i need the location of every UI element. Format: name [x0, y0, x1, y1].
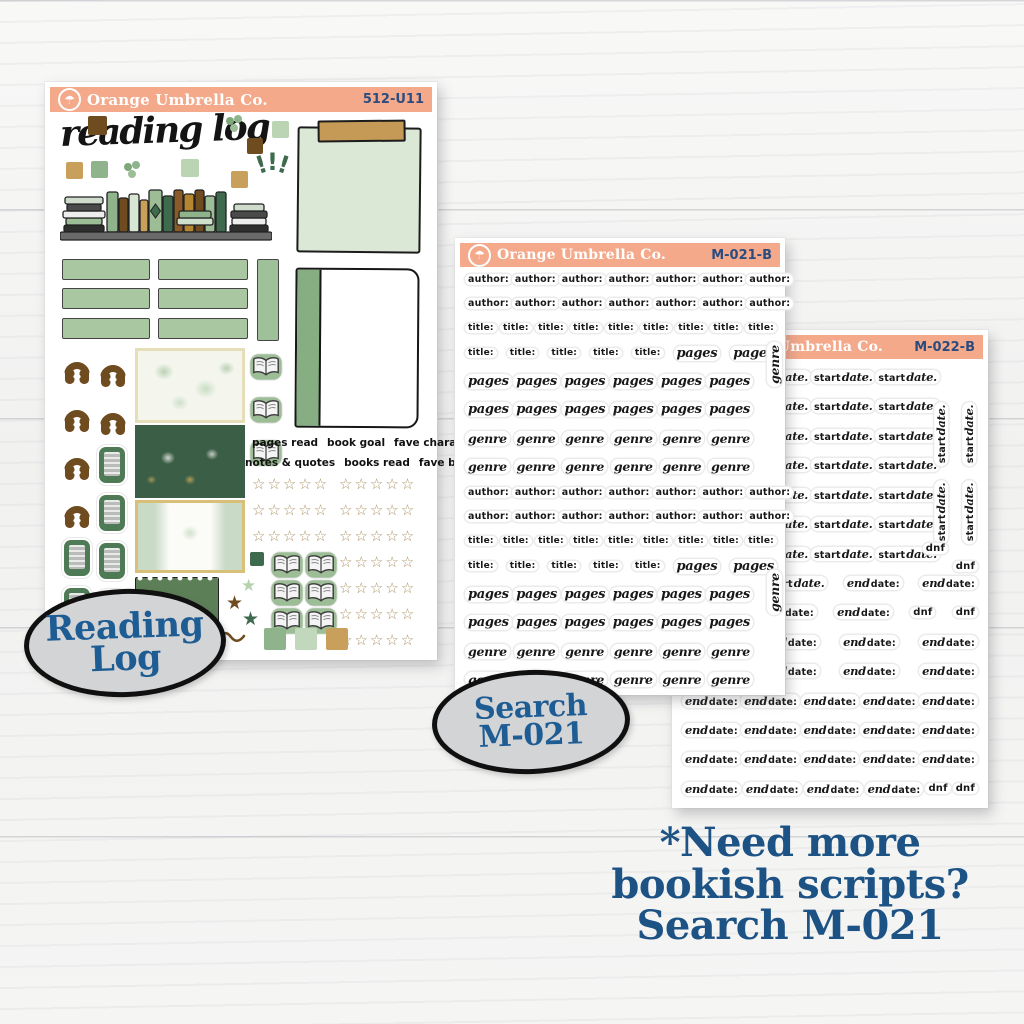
sticker-row: title:title:title:title:title:title:titl… [465, 323, 777, 333]
enddate-sticker: enddate: [860, 752, 919, 766]
genre-sticker: genre [514, 644, 559, 659]
e-reader-icon [99, 447, 125, 483]
startdate-sticker: startdate. [811, 547, 875, 561]
genre-sticker: genre [660, 459, 705, 474]
label-sticker-row: notes & quotesbooks readfave book [245, 457, 477, 469]
sticker-row: author:author:author:author:author:autho… [465, 274, 777, 285]
title-sticker: title: [632, 561, 664, 571]
dnf-sticker: dnf [953, 783, 978, 794]
washi-strip-sticker [62, 259, 150, 280]
square-sticker [264, 628, 286, 650]
star-rating-row: ☆☆☆☆☆ [339, 632, 416, 649]
author-sticker: author: [465, 487, 512, 498]
e-reader-icon [64, 540, 90, 576]
title-sticker: title: [640, 323, 672, 333]
genre-sticker: genre [514, 459, 559, 474]
author-sticker: author: [746, 511, 793, 522]
sticker-row: enddate:enddate:enddate:enddate:dnfdnf [682, 782, 978, 796]
enddate-sticker: enddate: [741, 723, 800, 737]
title-sticker: title: [465, 536, 497, 546]
sticker-row: pagespagespagespagespagespages [465, 587, 753, 602]
title-sticker: title: [710, 536, 742, 546]
title-sticker: title: [548, 348, 580, 358]
open-book-icon [304, 551, 338, 579]
title-sticker: title: [710, 323, 742, 333]
author-sticker: author: [653, 274, 700, 285]
star-sticker: ★ [242, 610, 259, 629]
author-sticker: author: [559, 274, 606, 285]
pages-sticker: pages [513, 587, 560, 602]
sticker-row: enddate:enddate:enddate:enddate:enddate: [682, 752, 978, 766]
enddate-sticker: enddate: [860, 723, 919, 737]
vertical-startdate-sticker: startdate. [930, 390, 952, 478]
enddate-sticker: enddate: [840, 664, 899, 678]
enddate-sticker: enddate: [919, 635, 978, 649]
sticker-row: genregenregenregenregenregenre [465, 431, 753, 446]
title-sticker: title: [640, 536, 672, 546]
pages-sticker: pages [706, 402, 753, 417]
pages-sticker: pages [658, 374, 705, 389]
title-sticker: title: [465, 348, 497, 358]
headphones-icon [62, 444, 92, 484]
sticker-row: genregenregenregenregenregenre [465, 459, 753, 474]
footer-line: Search M-021 [560, 905, 1020, 947]
star-rating-row: ☆☆☆☆☆ [339, 606, 416, 623]
label-sticker-row: pages readbook goalfave character [252, 437, 480, 449]
washi-strip-sticker [62, 318, 150, 339]
enddate-sticker: enddate: [743, 782, 802, 796]
genre-sticker: genre [465, 459, 510, 474]
washi-strip-sticker [62, 288, 150, 309]
author-sticker: author: [512, 298, 559, 309]
sticker-sheet-m021: ☂ Orange Umbrella Co. M-021-B author:aut… [455, 238, 785, 695]
sticker-row: title:title:title:title:title:pagespages [465, 559, 777, 574]
enddate-sticker: enddate: [834, 605, 893, 619]
dnf-sticker: dnf [923, 536, 948, 555]
author-sticker: author: [606, 487, 653, 498]
genre-sticker: genre [465, 644, 510, 659]
enddate-sticker: enddate: [801, 694, 860, 708]
open-book-icon [304, 579, 338, 607]
title-sticker: title: [675, 536, 707, 546]
pages-sticker: pages [610, 587, 657, 602]
startdate-sticker: startdate. [934, 480, 948, 544]
startdate-sticker: startdate. [875, 370, 939, 384]
vertical-startdate-sticker: startdate. [958, 468, 980, 556]
genre-sticker: genre [708, 672, 753, 687]
author-sticker: author: [746, 487, 793, 498]
author-sticker: author: [746, 298, 793, 309]
title-sticker: title: [632, 348, 664, 358]
enddate-sticker: enddate: [804, 782, 863, 796]
star-sticker: ★ [241, 578, 256, 595]
enddate-sticker: enddate: [801, 723, 860, 737]
enddate-sticker: enddate: [840, 635, 899, 649]
enddate-sticker: enddate: [919, 752, 978, 766]
open-book-icon [270, 551, 304, 579]
author-sticker: author: [512, 511, 559, 522]
star-rating-row: ☆☆☆☆☆ [252, 502, 329, 519]
pages-sticker: pages [465, 374, 512, 389]
genre-sticker: genre [562, 431, 607, 446]
brand-name: Orange Umbrella Co. [497, 247, 666, 263]
pages-sticker: pages [562, 374, 609, 389]
star-rating-row: ☆☆☆☆☆ [339, 502, 416, 519]
author-sticker: author: [606, 274, 653, 285]
square-sticker [295, 628, 317, 650]
open-book-icon [249, 396, 283, 424]
pages-sticker: pages [706, 374, 753, 389]
headphones-icon [62, 492, 92, 532]
author-sticker: author: [699, 487, 746, 498]
open-book-icon [249, 353, 283, 381]
enddate-sticker: enddate: [919, 694, 978, 708]
pages-sticker: pages [674, 559, 721, 574]
vertical-startdate-sticker: startdate. [958, 390, 980, 478]
enddate-sticker: enddate: [801, 752, 860, 766]
star-rating-row: ☆☆☆☆☆ [339, 476, 416, 493]
curtain-pattern-box-sticker [135, 500, 245, 573]
sticker-row: enddate:enddate:enddate:enddate:enddate: [682, 723, 978, 737]
enddate-sticker: enddate: [919, 576, 978, 590]
sticker-row: author:author:author:author:author:autho… [465, 298, 777, 309]
pages-sticker: pages [674, 346, 721, 361]
badge-line: Log [90, 642, 162, 677]
sticker-row: title:title:title:title:title:pagespages [465, 346, 777, 361]
square-sticker [272, 121, 289, 138]
title-sticker: title: [507, 561, 539, 571]
title-sticker: title: [605, 323, 637, 333]
title-sticker: title: [535, 323, 567, 333]
pages-sticker: pages [513, 402, 560, 417]
genre-sticker: genre [562, 459, 607, 474]
pages-sticker: pages [465, 587, 512, 602]
author-sticker: author: [559, 511, 606, 522]
genre-sticker: genre [611, 644, 656, 659]
startdate-sticker: startdate. [811, 429, 875, 443]
e-reader-icon [99, 543, 125, 579]
author-sticker: author: [653, 298, 700, 309]
star-rating-group-right: ☆☆☆☆☆☆☆☆☆☆☆☆☆☆☆☆☆☆☆☆☆☆☆☆☆☆☆☆☆☆☆☆☆☆☆ [339, 476, 416, 649]
star-sticker: ★ [226, 594, 243, 613]
author-sticker: author: [606, 511, 653, 522]
enddate-sticker: enddate: [682, 752, 741, 766]
pages-sticker: pages [658, 587, 705, 602]
star-rating-row: ☆☆☆☆☆ [252, 528, 329, 545]
enddate-sticker: enddate: [741, 694, 800, 708]
headphones-icon [62, 396, 92, 436]
star-rating-row: ☆☆☆☆☆ [339, 580, 416, 597]
genre-sticker: genre [514, 431, 559, 446]
title-sticker: title: [507, 348, 539, 358]
title-sticker: title: [500, 323, 532, 333]
label-sticker: notes & quotes [245, 457, 335, 469]
exclamation-marks-sticker: !!! [255, 148, 290, 176]
dnf-sticker: dnf [910, 607, 935, 618]
star-rating-row: ☆☆☆☆☆ [252, 476, 329, 493]
author-sticker: author: [699, 274, 746, 285]
author-sticker: author: [512, 487, 559, 498]
author-sticker: author: [653, 511, 700, 522]
title-sticker: title: [605, 536, 637, 546]
sticker-row: pagespagespagespagespagespages [465, 374, 753, 389]
badge-line: M-021 [478, 720, 585, 751]
square-sticker [250, 552, 264, 566]
enddate-sticker: enddate: [682, 723, 741, 737]
genre-sticker: genre [562, 644, 607, 659]
pages-sticker: pages [658, 615, 705, 630]
washi-strip-sticker [257, 259, 279, 341]
genre-sticker: genre [767, 570, 782, 615]
footer-line: *Need more [560, 822, 1020, 864]
book-cover-sticker [294, 268, 419, 429]
title-sticker: title: [590, 348, 622, 358]
e-reader-icon [99, 495, 125, 531]
author-sticker: author: [606, 298, 653, 309]
pages-sticker: pages [610, 402, 657, 417]
dnf-sticker: dnf [953, 554, 978, 573]
pages-sticker: pages [562, 615, 609, 630]
title-sticker: title: [590, 561, 622, 571]
washi-strip-sticker [158, 288, 248, 309]
pages-sticker: pages [465, 615, 512, 630]
clover-pattern-box-sticker [135, 348, 245, 423]
pages-sticker: pages [465, 402, 512, 417]
washi-strip-sticker [158, 259, 248, 280]
startdate-sticker: startdate. [811, 370, 875, 384]
square-sticker [66, 162, 83, 179]
pages-sticker: pages [513, 374, 560, 389]
square-sticker [326, 628, 348, 650]
label-sticker: pages read [252, 437, 318, 449]
star-rating-group-left: ☆☆☆☆☆☆☆☆☆☆☆☆☆☆☆ [252, 476, 329, 545]
dnf-sticker: dnf [953, 607, 978, 618]
author-sticker: author: [746, 274, 793, 285]
genre-sticker: genre [660, 644, 705, 659]
sticker-row: pagespagespagespagespagespages [465, 402, 753, 417]
enddate-sticker: enddate: [682, 782, 741, 796]
genre-sticker: genre [708, 459, 753, 474]
pages-sticker: pages [562, 587, 609, 602]
product-listing-image: ☂ Orange Umbrella Co. M-022-B startdate.… [0, 0, 1024, 1024]
label-sticker: books read [344, 457, 410, 469]
genre-sticker: genre [767, 342, 782, 387]
author-sticker: author: [559, 487, 606, 498]
sheet-code: M-021-B [711, 248, 772, 263]
pages-sticker: pages [706, 587, 753, 602]
star-rating-row: ☆☆☆☆☆ [339, 528, 416, 545]
pages-sticker: pages [610, 374, 657, 389]
sticker-row: author:author:author:author:author:autho… [465, 511, 777, 522]
sticker-row: author:author:author:author:author:autho… [465, 487, 777, 498]
startdate-sticker: startdate. [962, 402, 976, 466]
author-sticker: author: [465, 274, 512, 285]
dnf-sticker: dnf [923, 543, 948, 554]
vertical-genre-sticker: genre [764, 314, 784, 414]
clover-icon [226, 117, 234, 125]
headphones-icon [98, 399, 128, 439]
book-spine [296, 270, 321, 426]
sticker-row: title:title:title:title:title:title:titl… [465, 536, 777, 546]
startdate-sticker: startdate. [934, 402, 948, 466]
startdate-sticker: startdate. [811, 488, 875, 502]
title-sticker: title: [535, 536, 567, 546]
sticker-row: pagespagespagespagespagespages [465, 615, 753, 630]
author-sticker: author: [512, 274, 559, 285]
genre-sticker: genre [708, 644, 753, 659]
startdate-sticker: startdate. [811, 517, 875, 531]
footer-note: *Need more bookish scripts? Search M-021 [560, 822, 1020, 947]
pages-sticker: pages [658, 402, 705, 417]
pages-sticker: pages [513, 615, 560, 630]
startdate-sticker: startdate. [811, 399, 875, 413]
pages-sticker: pages [706, 615, 753, 630]
genre-sticker: genre [708, 431, 753, 446]
author-sticker: author: [653, 487, 700, 498]
dnf-sticker: dnf [953, 561, 978, 572]
washi-strip-sticker [158, 318, 248, 339]
square-sticker [181, 159, 199, 177]
bookshelf-illustration [60, 182, 272, 248]
sticker-grid-m021: author:author:author:author:author:autho… [465, 274, 777, 687]
enddate-sticker: enddate: [919, 723, 978, 737]
sheet-code: 512-U11 [363, 92, 424, 107]
author-sticker: author: [699, 298, 746, 309]
startdate-sticker: startdate. [811, 458, 875, 472]
title-sticker: title: [675, 323, 707, 333]
sheet-header-m021: ☂ Orange Umbrella Co. M-021-B [460, 243, 780, 267]
enddate-sticker: enddate: [919, 664, 978, 678]
title-sticker: title: [570, 323, 602, 333]
title-sticker: title: [500, 536, 532, 546]
footer-line: bookish scripts? [560, 864, 1020, 906]
author-sticker: author: [699, 511, 746, 522]
vertical-genre-sticker: genre [764, 542, 784, 642]
title-sticker: title: [465, 323, 497, 333]
square-sticker [88, 116, 107, 135]
startdate-sticker: startdate. [962, 480, 976, 544]
open-book-icon [270, 579, 304, 607]
dnf-sticker: dnf [925, 783, 950, 794]
author-sticker: author: [465, 511, 512, 522]
sticker-sheet-reading-log-kit: ☂ Orange Umbrella Co. 512-U11 reading lo… [45, 82, 437, 660]
enddate-sticker: enddate: [682, 694, 741, 708]
pages-sticker: pages [610, 615, 657, 630]
enddate-sticker: enddate: [860, 694, 919, 708]
headphones-icon [98, 351, 128, 391]
umbrella-logo-icon: ☂ [468, 244, 491, 267]
umbrella-glyph: ☂ [64, 94, 75, 106]
star-rating-row: ☆☆☆☆☆ [339, 554, 416, 571]
author-sticker: author: [559, 298, 606, 309]
sticky-note-sticker [296, 126, 421, 253]
sticker-row: enddate:enddate:enddate:enddate:enddate: [682, 694, 978, 708]
enddate-sticker: enddate: [741, 752, 800, 766]
washi-tape-icon [318, 120, 406, 143]
title-sticker: title: [548, 561, 580, 571]
genre-sticker: genre [611, 672, 656, 687]
genre-sticker: genre [660, 672, 705, 687]
clover-icon [124, 163, 132, 171]
pages-sticker: pages [562, 402, 609, 417]
genre-sticker: genre [660, 431, 705, 446]
author-sticker: author: [465, 298, 512, 309]
genre-sticker: genre [611, 459, 656, 474]
sticker-row: genregenregenregenregenregenre [465, 644, 753, 659]
genre-sticker: genre [611, 431, 656, 446]
sheet-code: M-022-B [914, 340, 975, 355]
title-sticker: title: [570, 536, 602, 546]
genre-sticker: genre [465, 431, 510, 446]
umbrella-logo-icon: ☂ [58, 88, 81, 111]
enddate-sticker: enddate: [844, 576, 903, 590]
square-sticker [91, 161, 108, 178]
enddate-sticker: enddate: [865, 782, 924, 796]
headphones-icon [62, 348, 92, 388]
dark-green-pattern-box-sticker [135, 425, 245, 498]
umbrella-glyph: ☂ [474, 249, 485, 261]
title-sticker: title: [465, 561, 497, 571]
label-sticker: book goal [327, 437, 385, 449]
